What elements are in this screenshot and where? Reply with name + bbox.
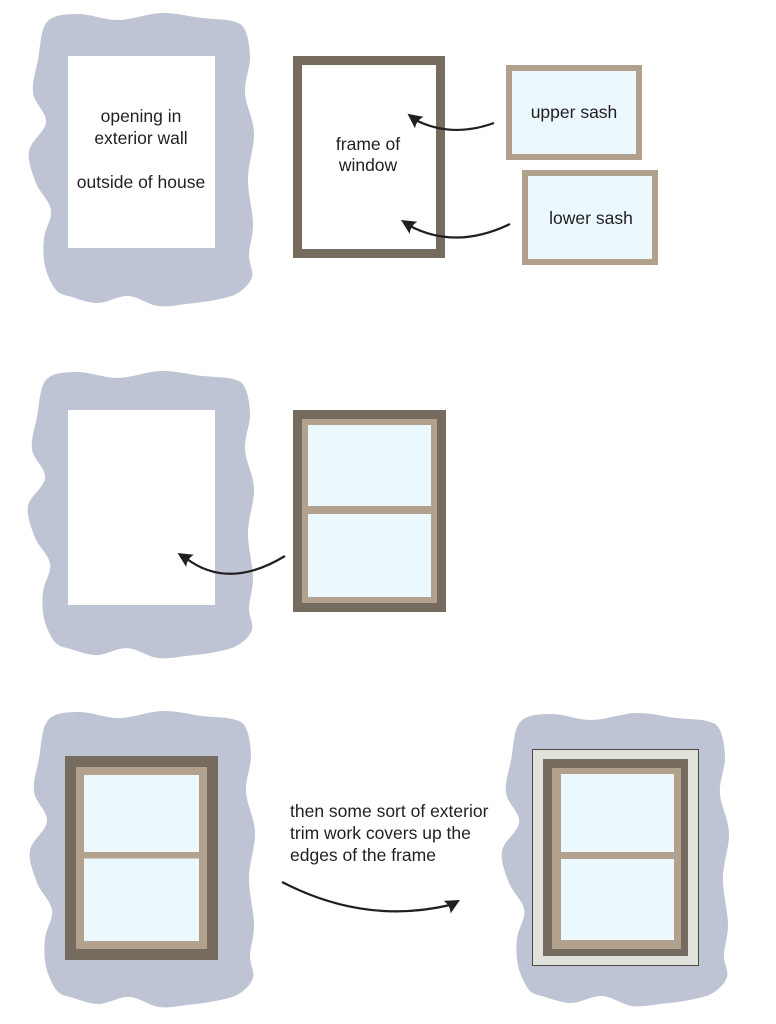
svg-text:edges of the frame: edges of the frame [290,845,436,865]
svg-text:lower sash: lower sash [549,208,633,228]
svg-text:window: window [338,155,398,175]
svg-text:trim work covers up the: trim work covers up the [290,823,471,843]
svg-text:exterior wall: exterior wall [94,128,187,148]
svg-text:then some sort of exterior: then some sort of exterior [290,801,489,821]
svg-text:frame of: frame of [336,134,400,154]
svg-text:opening in: opening in [101,106,182,126]
svg-text:outside of house: outside of house [77,172,205,192]
svg-text:upper sash: upper sash [531,102,618,122]
